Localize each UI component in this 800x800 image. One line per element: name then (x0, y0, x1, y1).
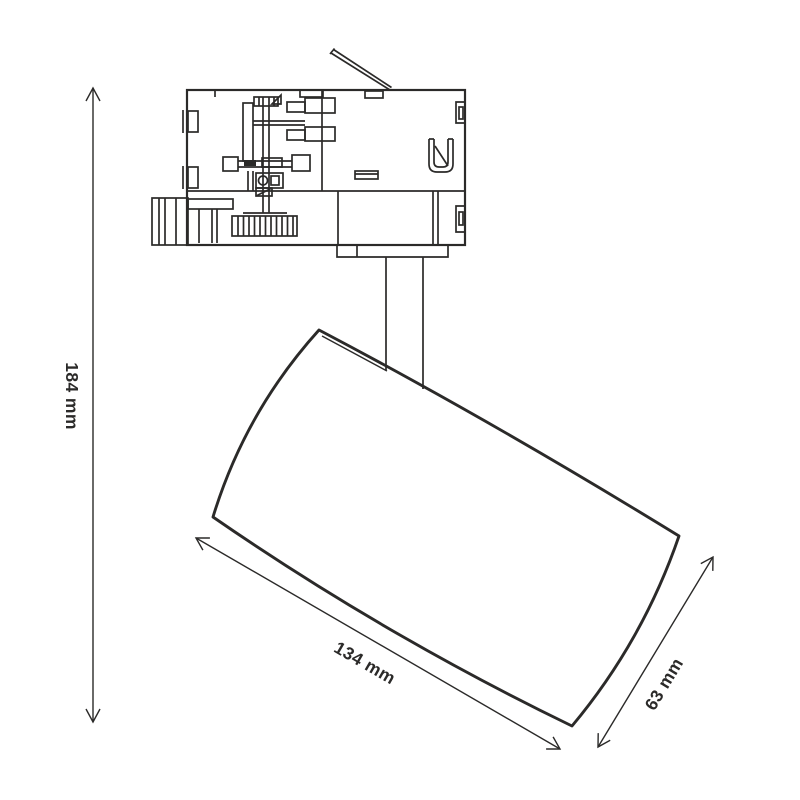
width-dimension-line (598, 557, 713, 747)
lamp-body-rim-line (322, 336, 387, 371)
mount-flange (337, 245, 448, 257)
crossbar-end-block (292, 155, 310, 171)
contact-mechanism (223, 95, 335, 213)
release-lever (330, 49, 392, 91)
length-dimension-label: 134 mm (331, 637, 400, 688)
lamp-body (213, 330, 679, 726)
width-dimension: 63 mm (598, 557, 713, 747)
knob-body (152, 198, 188, 245)
width-dimension-label: 63 mm (640, 654, 687, 714)
mech-contact-pad (305, 127, 335, 141)
knob-shaft-bar (188, 199, 233, 209)
crossbar-clamp (244, 160, 256, 166)
product-dimension-drawing: 184 mm (0, 0, 800, 800)
length-dimension: 134 mm (196, 538, 560, 749)
clip-inner (459, 212, 463, 225)
guide-tab (188, 167, 198, 188)
slot-outline (355, 171, 378, 179)
lever-seat-tab (365, 91, 383, 98)
track-adapter (152, 49, 465, 258)
length-dimension-line (196, 538, 560, 749)
vent-grille (232, 213, 297, 236)
height-dimension-label: 184 mm (62, 362, 82, 430)
mech-arm (287, 102, 305, 112)
guide-tab (188, 111, 198, 132)
mech-arm (287, 130, 305, 140)
mech-plate (243, 103, 253, 161)
crossbar-end-block (223, 157, 238, 171)
u-latch-diagonal (435, 146, 448, 166)
clip-inner (459, 107, 463, 119)
lever-lower-edge (331, 53, 390, 90)
lever-upper-edge (334, 50, 392, 88)
u-latch (429, 139, 453, 172)
flange-outline (337, 245, 448, 257)
mech-lower-inner (271, 176, 279, 185)
locking-knob (152, 198, 233, 245)
crossbar-clamp (262, 158, 282, 167)
height-dimension: 184 mm (62, 88, 100, 722)
left-rail-guides (183, 110, 198, 189)
lamp-body-outline (213, 330, 679, 726)
drawing-canvas: 184 mm (0, 0, 800, 800)
right-edge-clips (456, 102, 465, 232)
right-chamber-slot (355, 171, 378, 179)
mech-contact-pad (305, 98, 335, 113)
